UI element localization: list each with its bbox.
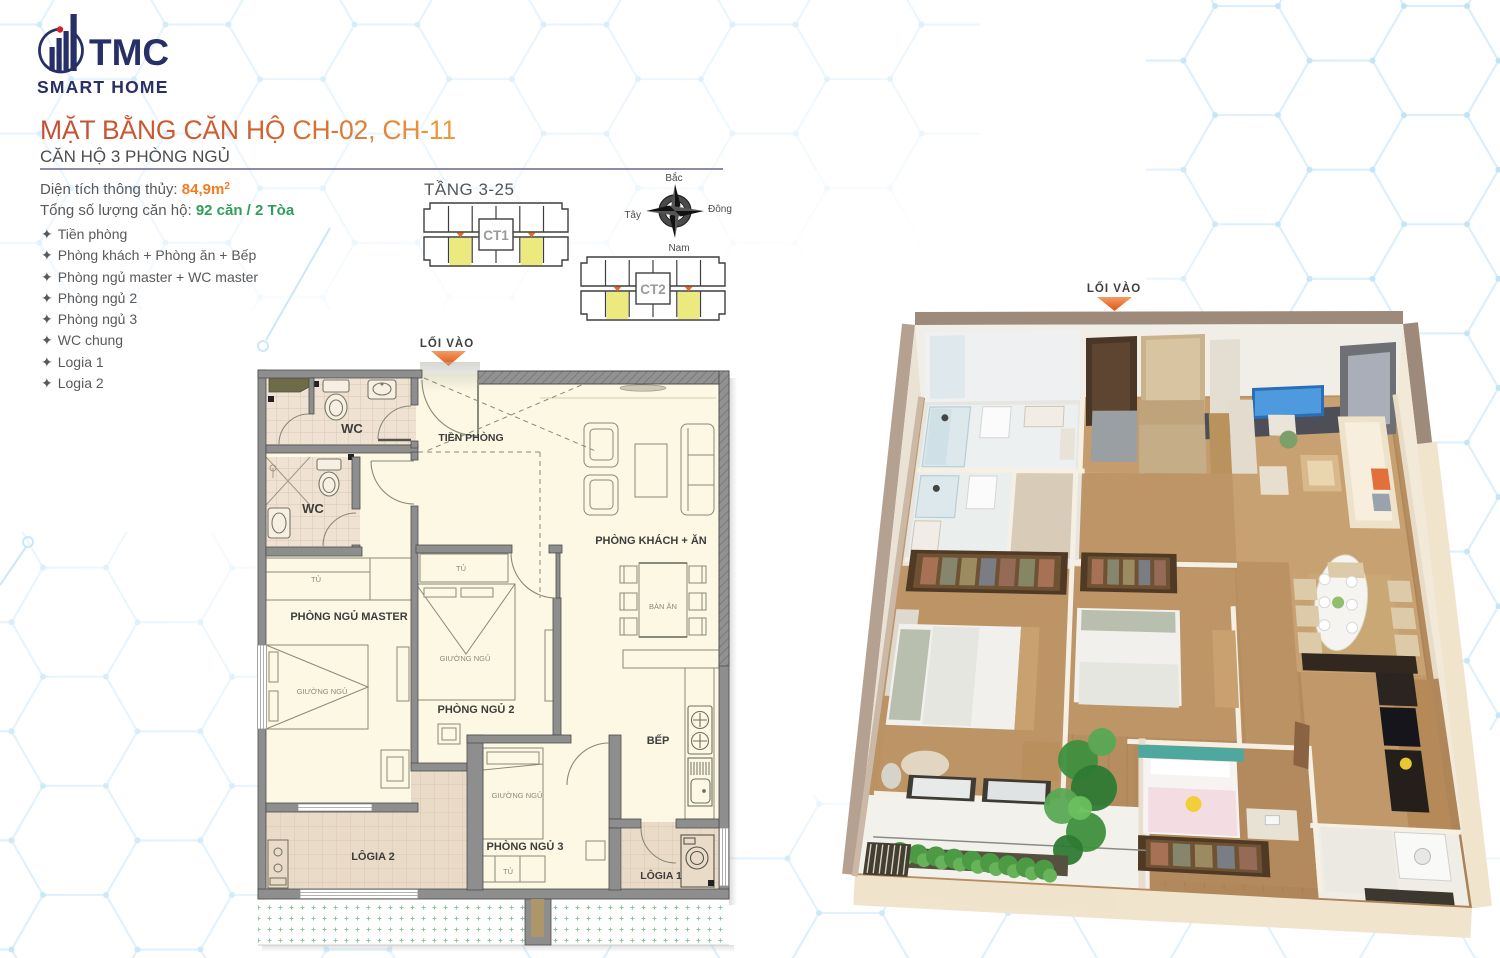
svg-text:TIỀN PHÒNG: TIỀN PHÒNG bbox=[438, 431, 503, 444]
svg-text:PHÒNG NGỦ 2: PHÒNG NGỦ 2 bbox=[437, 703, 514, 716]
svg-text:PHÒNG NGỦ MASTER: PHÒNG NGỦ MASTER bbox=[290, 610, 407, 623]
svg-text:Bắc: Bắc bbox=[665, 171, 682, 184]
svg-text:PHÒNG KHÁCH + ĂN: PHÒNG KHÁCH + ĂN bbox=[595, 534, 707, 547]
svg-text:TỦ: TỦ bbox=[456, 564, 466, 573]
svg-text:Đông: Đông bbox=[708, 204, 732, 215]
svg-text:LÔGIA 1: LÔGIA 1 bbox=[640, 869, 682, 882]
svg-text:LỐI VÀO: LỐI VÀO bbox=[420, 336, 474, 350]
svg-text:SMART HOME: SMART HOME bbox=[37, 77, 169, 97]
svg-text:Tây: Tây bbox=[624, 210, 641, 221]
svg-text:Nam: Nam bbox=[668, 243, 689, 254]
svg-text:CT1: CT1 bbox=[483, 228, 509, 243]
svg-text:PHÒNG NGỦ 3: PHÒNG NGỦ 3 bbox=[486, 840, 563, 853]
svg-text:LÔGIA 2: LÔGIA 2 bbox=[351, 850, 395, 863]
svg-text:WC: WC bbox=[341, 421, 363, 436]
svg-text:BÀN ĂN: BÀN ĂN bbox=[649, 602, 677, 611]
svg-text:WC: WC bbox=[302, 501, 324, 516]
svg-text:GIƯỜNG NGỦ: GIƯỜNG NGỦ bbox=[297, 687, 348, 696]
svg-text:TMC: TMC bbox=[89, 32, 169, 73]
svg-text:BẾP: BẾP bbox=[647, 734, 670, 747]
svg-text:GIƯỜNG NGỦ: GIƯỜNG NGỦ bbox=[440, 654, 491, 663]
svg-text:LỐI VÀO: LỐI VÀO bbox=[1087, 281, 1141, 295]
svg-text:TỦ: TỦ bbox=[503, 867, 513, 876]
svg-text:CT2: CT2 bbox=[640, 282, 666, 297]
svg-text:GIƯỜNG NGỦ: GIƯỜNG NGỦ bbox=[492, 791, 543, 800]
svg-text:TỦ: TỦ bbox=[311, 575, 321, 584]
